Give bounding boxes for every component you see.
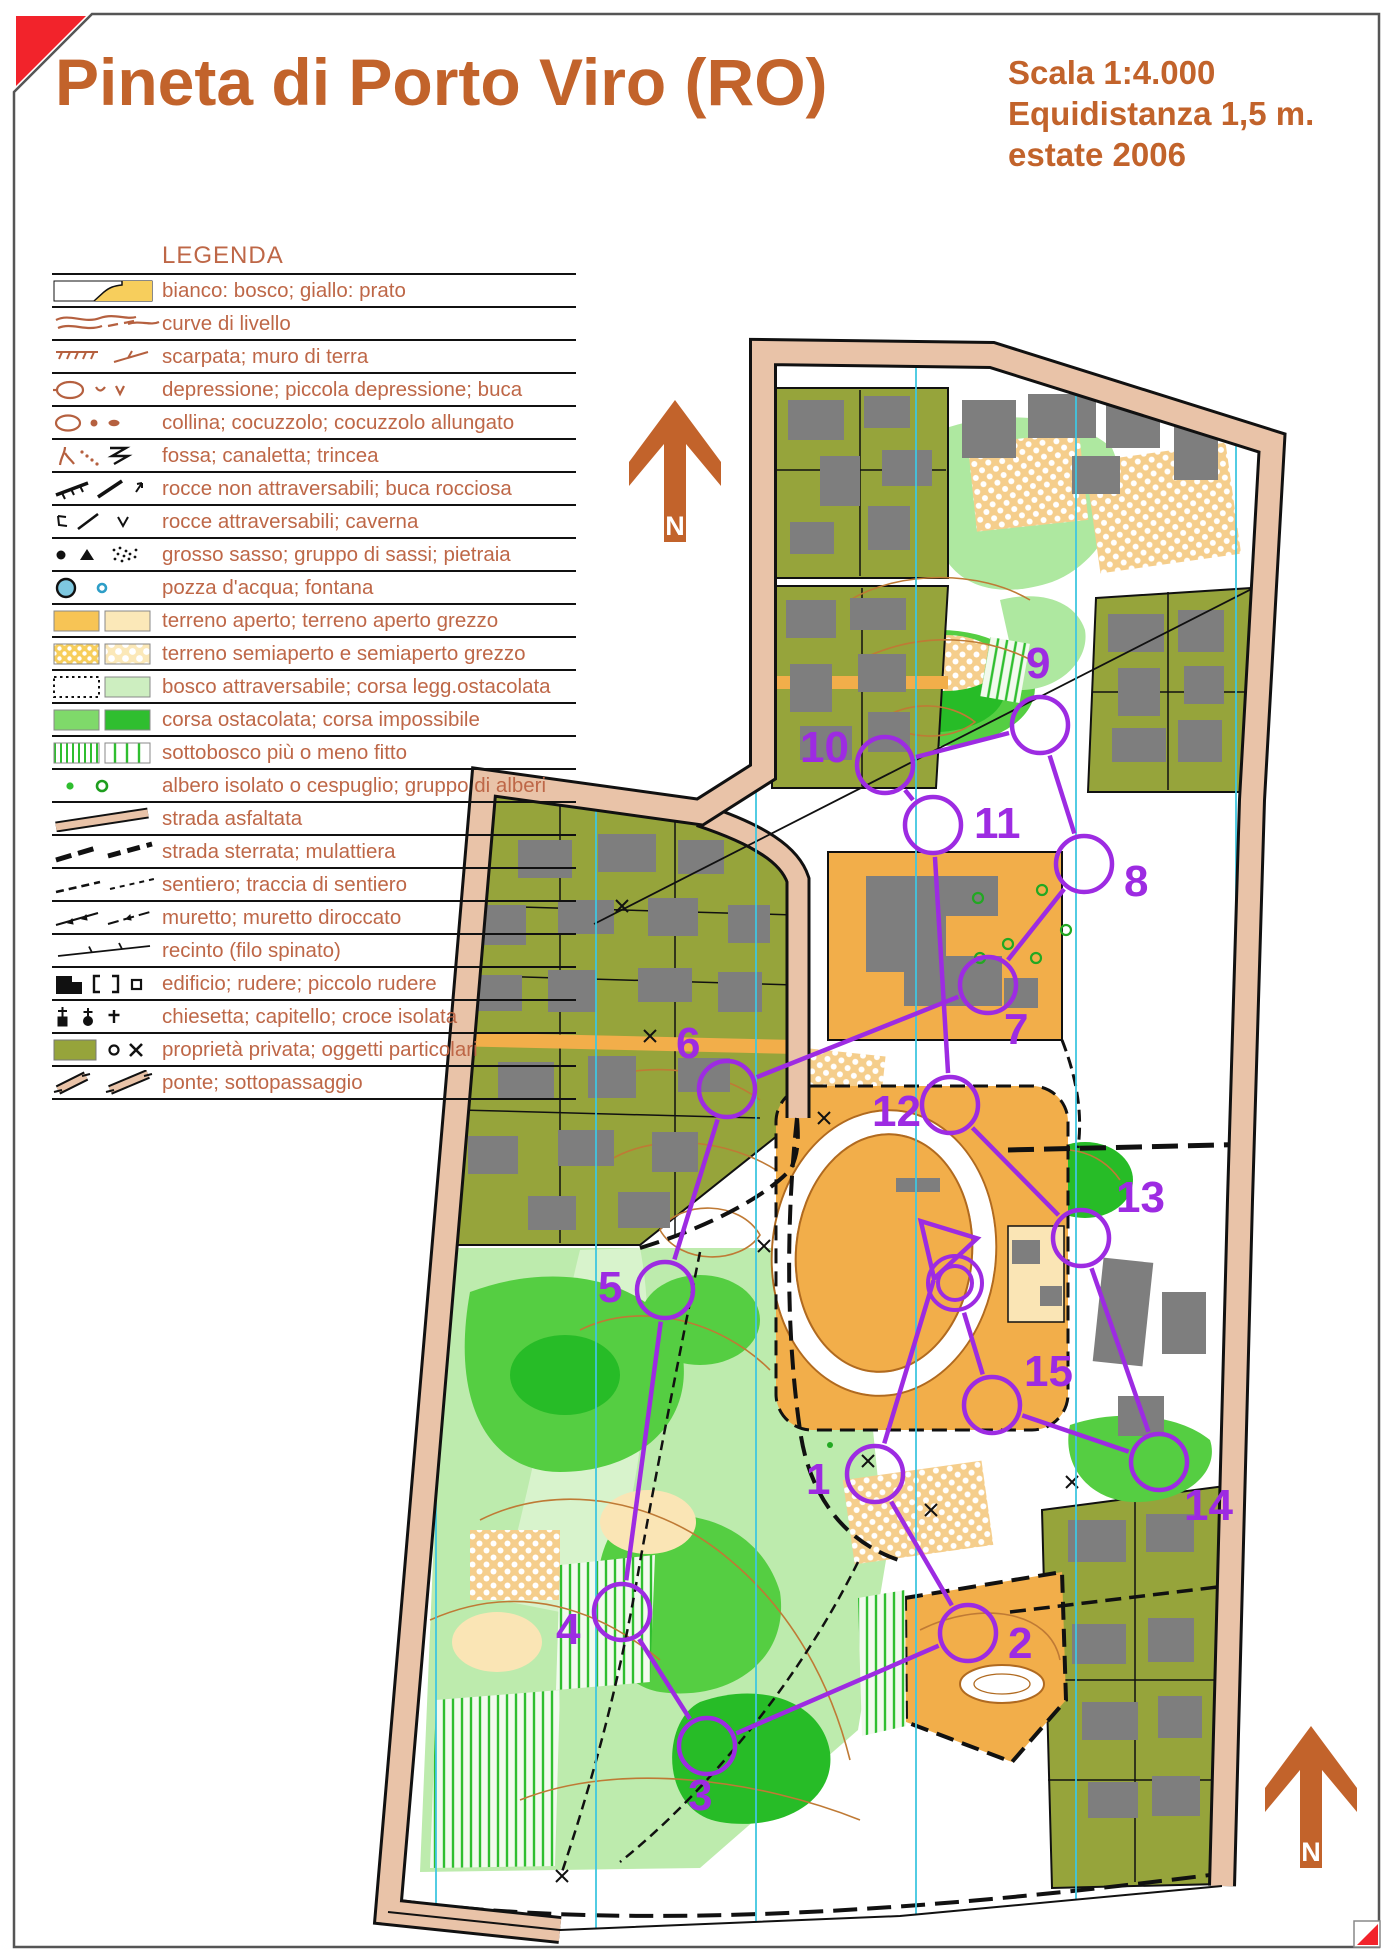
gully-ditch-trench-icon xyxy=(52,443,162,469)
legend-label: terreno semiaperto e semiaperto grezzo xyxy=(162,642,526,666)
map-scale-block: Scala 1:4.000 Equidistanza 1,5 m. estate… xyxy=(1008,52,1314,175)
legend-label: sentiero; traccia di sentiero xyxy=(162,873,407,897)
impassable-rocks-icon xyxy=(52,476,162,502)
legend-row: sentiero; traccia di sentiero xyxy=(52,869,576,902)
legend-label: rocce attraversabili; caverna xyxy=(162,510,418,534)
legend-label: grosso sasso; gruppo di sassi; pietraia xyxy=(162,543,511,567)
legend-row: recinto (filo spinato) xyxy=(52,935,576,968)
legend-row: bosco attraversabile; corsa legg.ostacol… xyxy=(52,671,576,704)
footpath-icon xyxy=(52,872,162,898)
legend-row: chiesetta; capitello; croce isolata xyxy=(52,1001,576,1034)
isolated-tree-icon xyxy=(52,773,162,799)
control-number-2: 2 xyxy=(1008,1619,1032,1668)
legend-label: corsa ostacolata; corsa impossibile xyxy=(162,708,480,732)
hill-knoll-icon xyxy=(52,410,162,436)
control-number-1: 1 xyxy=(806,1455,830,1504)
undergrowth-stripes-icon xyxy=(52,740,162,766)
control-number-15: 15 xyxy=(1024,1347,1073,1396)
white-yellow-area-swatch-icon xyxy=(52,278,162,304)
passable-forest-swatch-icon xyxy=(52,674,162,700)
legend-label: curve di livello xyxy=(162,312,291,336)
control-number-3: 3 xyxy=(688,1771,712,1820)
semiopen-land-swatch-icon xyxy=(52,641,162,667)
legend-row: strada asfaltata xyxy=(52,803,576,836)
bridge-underpass-icon xyxy=(52,1070,162,1096)
control-number-10: 10 xyxy=(800,723,849,772)
map-sheet: 123456789101112131415 N N Pineta di Port… xyxy=(0,0,1385,1954)
legend-row: edificio; rudere; piccolo rudere xyxy=(52,968,576,1001)
legend-label: albero isolato o cespuglio; gruppo di al… xyxy=(162,774,546,798)
legend-label: terreno aperto; terreno aperto grezzo xyxy=(162,609,498,633)
legend-row: sottobosco più o meno fitto xyxy=(52,737,576,770)
stone-wall-icon xyxy=(52,905,162,931)
control-number-4: 4 xyxy=(556,1605,581,1654)
legend-row: collina; cocuzzolo; cocuzzolo allungato xyxy=(52,407,576,440)
control-number-6: 6 xyxy=(676,1019,700,1068)
legend-row: terreno semiaperto e semiaperto grezzo xyxy=(52,638,576,671)
building-ruin-icon xyxy=(52,971,162,997)
legend-row: rocce attraversabili; caverna xyxy=(52,506,576,539)
legend-label: pozza d'acqua; fontana xyxy=(162,576,373,600)
slow-run-swatch-icon xyxy=(52,707,162,733)
legend-label: collina; cocuzzolo; cocuzzolo allungato xyxy=(162,411,514,435)
north-arrow-bottom: N xyxy=(1265,1726,1357,1868)
north-arrow-top: N xyxy=(629,400,721,542)
page-title: Pineta di Porto Viro (RO) xyxy=(55,44,955,120)
legend-row: corsa ostacolata; corsa impossibile xyxy=(52,704,576,737)
legend-label: proprietà privata; oggetti particolari xyxy=(162,1038,478,1062)
legend-row: muretto; muretto diroccato xyxy=(52,902,576,935)
control-number-8: 8 xyxy=(1124,857,1148,906)
boulder-stones-icon xyxy=(52,542,162,568)
pond xyxy=(960,1665,1044,1703)
legend-label: scarpata; muro di terra xyxy=(162,345,368,369)
legend-row: grosso sasso; gruppo di sassi; pietraia xyxy=(52,539,576,572)
legend-label: depressione; piccola depressione; buca xyxy=(162,378,522,402)
church-cross-icon xyxy=(52,1004,162,1030)
legend: LEGENDA bianco: bosco; giallo: prato cur… xyxy=(52,242,576,1100)
control-number-11: 11 xyxy=(974,799,1021,848)
wire-fence-icon xyxy=(52,938,162,964)
legend-label: chiesetta; capitello; croce isolata xyxy=(162,1005,457,1029)
legend-label: ponte; sottopassaggio xyxy=(162,1071,363,1095)
legend-row: depressione; piccola depressione; buca xyxy=(52,374,576,407)
paved-road-icon xyxy=(52,806,162,832)
scale-text: Scala 1:4.000 xyxy=(1008,52,1314,93)
legend-label: sottobosco più o meno fitto xyxy=(162,741,407,765)
legend-row: rocce non attraversabili; buca rocciosa xyxy=(52,473,576,506)
control-number-7: 7 xyxy=(1004,1005,1028,1054)
legend-label: strada sterrata; mulattiera xyxy=(162,840,396,864)
legend-label: edificio; rudere; piccolo rudere xyxy=(162,972,437,996)
legend-row: scarpata; muro di terra xyxy=(52,341,576,374)
control-number-5: 5 xyxy=(598,1263,622,1312)
legend-row: fossa; canaletta; trincea xyxy=(52,440,576,473)
control-number-14: 14 xyxy=(1184,1481,1233,1530)
equidistance-text: Equidistanza 1,5 m. xyxy=(1008,93,1314,134)
dirt-road-icon xyxy=(52,839,162,865)
legend-row: strada sterrata; mulattiera xyxy=(52,836,576,869)
legend-label: muretto; muretto diroccato xyxy=(162,906,401,930)
legend-row: curve di livello xyxy=(52,308,576,341)
legend-title: LEGENDA xyxy=(52,242,576,275)
waterhole-fountain-icon xyxy=(52,575,162,601)
legend-label: fossa; canaletta; trincea xyxy=(162,444,379,468)
control-number-13: 13 xyxy=(1116,1173,1165,1222)
legend-label: bosco attraversabile; corsa legg.ostacol… xyxy=(162,675,551,699)
passable-rocks-cave-icon xyxy=(52,509,162,535)
legend-label: recinto (filo spinato) xyxy=(162,939,341,963)
legend-row: terreno aperto; terreno aperto grezzo xyxy=(52,605,576,638)
legend-label: rocce non attraversabili; buca rocciosa xyxy=(162,477,512,501)
legend-label: bianco: bosco; giallo: prato xyxy=(162,279,406,303)
depression-pit-icon xyxy=(52,377,162,403)
season-text: estate 2006 xyxy=(1008,134,1314,175)
legend-row: ponte; sottopassaggio xyxy=(52,1067,576,1100)
control-number-12: 12 xyxy=(872,1087,921,1136)
private-property-icon xyxy=(52,1037,162,1063)
open-land-swatch-icon xyxy=(52,608,162,634)
legend-row: proprietà privata; oggetti particolari xyxy=(52,1034,576,1067)
legend-row: albero isolato o cespuglio; gruppo di al… xyxy=(52,770,576,803)
control-number-9: 9 xyxy=(1026,639,1050,688)
legend-label: strada asfaltata xyxy=(162,807,302,831)
north-letter: N xyxy=(665,511,685,541)
earth-bank-wall-icon xyxy=(52,344,162,370)
contour-lines-icon xyxy=(52,311,162,337)
north-letter: N xyxy=(1301,1837,1321,1867)
legend-row: pozza d'acqua; fontana xyxy=(52,572,576,605)
legend-row: bianco: bosco; giallo: prato xyxy=(52,275,576,308)
